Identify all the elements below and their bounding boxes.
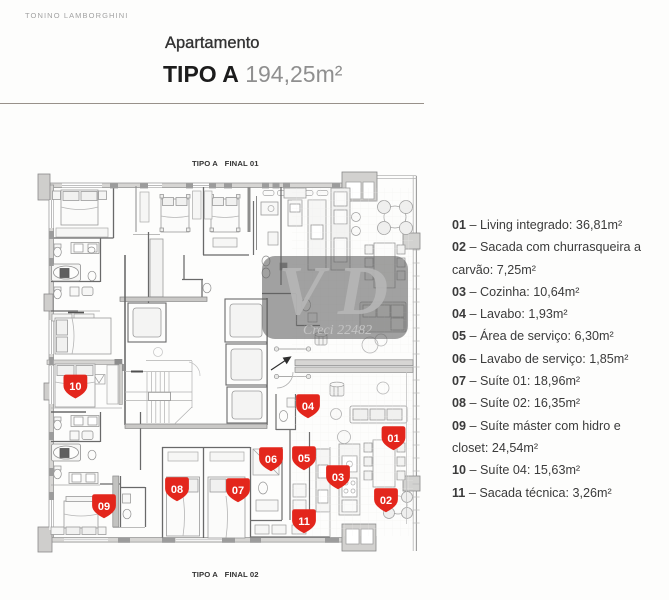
svg-text:05: 05 [298, 453, 310, 465]
svg-text:07: 07 [232, 485, 244, 497]
svg-text:06: 06 [265, 454, 277, 466]
svg-text:03: 03 [332, 472, 344, 484]
svg-text:11: 11 [298, 516, 310, 528]
svg-text:02: 02 [380, 495, 392, 507]
svg-text:04: 04 [302, 401, 315, 413]
svg-text:VD: VD [278, 253, 401, 330]
svg-text:Creci 22482: Creci 22482 [303, 323, 372, 338]
svg-text:08: 08 [171, 484, 183, 496]
svg-text:01: 01 [387, 433, 399, 445]
svg-text:10: 10 [69, 381, 81, 393]
svg-text:09: 09 [98, 501, 110, 513]
